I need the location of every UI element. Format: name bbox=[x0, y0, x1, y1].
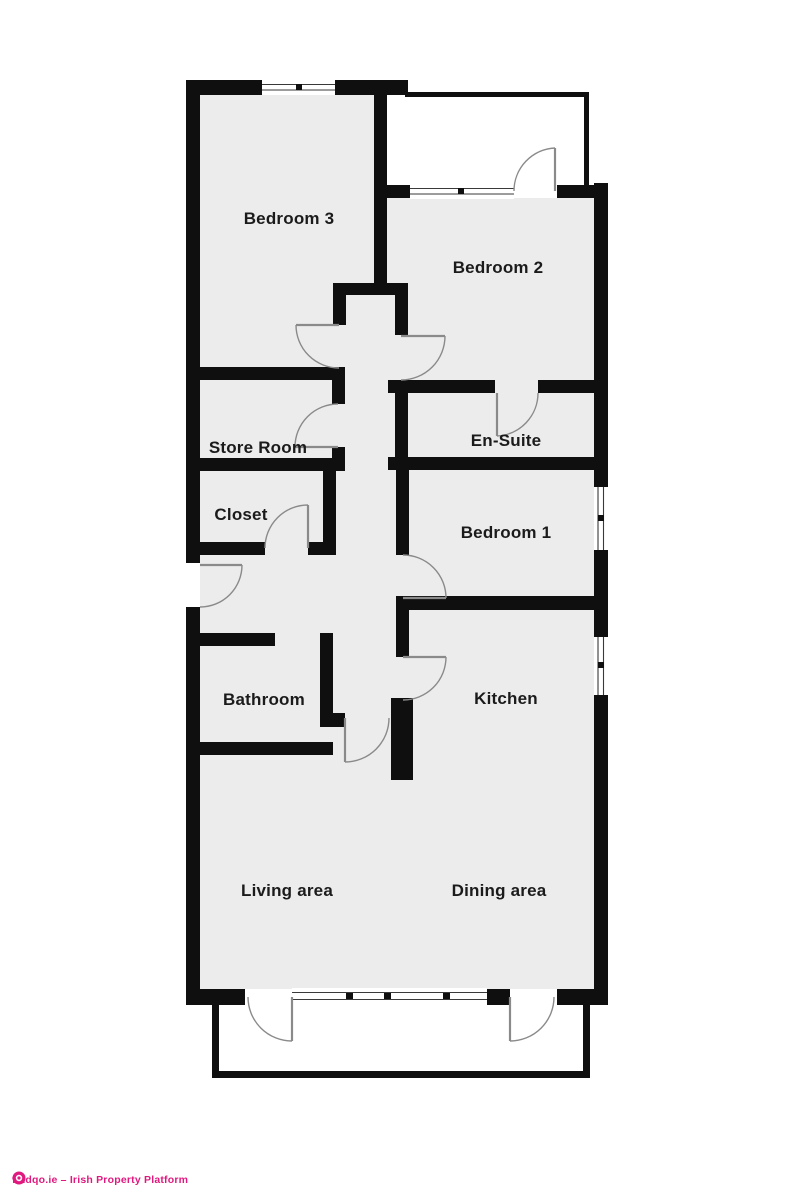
room-label-bathroom: Bathroom bbox=[223, 690, 305, 709]
wall-ensuite-bottom bbox=[388, 457, 608, 470]
room-label-dining-area: Dining area bbox=[452, 881, 547, 900]
wall-storeroom-right-upper bbox=[332, 367, 345, 404]
watermark: findqo.ie – Irish Property Platform bbox=[12, 1171, 188, 1189]
wall-bathroom-top bbox=[186, 633, 275, 646]
wall-bathroom-nub bbox=[320, 713, 345, 727]
room-label-en-suite: En-Suite bbox=[471, 431, 542, 450]
room-label-kitchen: Kitchen bbox=[474, 689, 538, 708]
room-label-bedroom2: Bedroom 2 bbox=[453, 258, 544, 277]
door-balcony-opening bbox=[514, 185, 557, 198]
wall-kitchen-pillar bbox=[391, 698, 413, 780]
wall-closet-right bbox=[323, 458, 336, 548]
wall-store-closet-divider bbox=[186, 458, 345, 471]
wall-balcony-right bbox=[584, 92, 589, 185]
wall-bedroom2-top-left bbox=[387, 185, 410, 198]
room-label-bedroom1: Bedroom 1 bbox=[461, 523, 552, 542]
room-label-store-room: Store Room bbox=[209, 438, 307, 457]
wall-bottom-mid bbox=[487, 989, 510, 1005]
wall-hall-right-upper bbox=[395, 283, 408, 335]
wall-ensuite-left bbox=[395, 380, 408, 470]
wall-outer-right-mid bbox=[594, 550, 608, 637]
door-balcony-left-opening bbox=[245, 989, 292, 1005]
wall-bottom-right bbox=[557, 989, 608, 1005]
floor-plan: Bedroom 3 Bedroom 2 Store Room En-Suite … bbox=[0, 0, 800, 1200]
wall-outer-right-lower bbox=[594, 695, 608, 1005]
door-balcony-right-opening bbox=[510, 989, 557, 1005]
wall-storeroom-top bbox=[186, 367, 345, 380]
floor-plan-page: Bedroom 3 Bedroom 2 Store Room En-Suite … bbox=[0, 0, 800, 1200]
wall-bedroom1-left bbox=[396, 457, 409, 555]
room-label-living-area: Living area bbox=[241, 881, 333, 900]
room-label-bedroom3: Bedroom 3 bbox=[244, 209, 335, 228]
wall-bedroom2-top-right bbox=[557, 185, 608, 198]
balcony-bottom bbox=[212, 1002, 590, 1078]
wall-outer-left-lower bbox=[186, 607, 200, 1005]
wall-hall-right-lower bbox=[396, 610, 409, 657]
wall-ensuite-top-right bbox=[538, 380, 608, 393]
wall-outer-left-upper bbox=[186, 80, 200, 563]
wall-balcony-top bbox=[405, 92, 588, 97]
wall-hall-left-stub bbox=[333, 283, 346, 325]
wall-outer-right-upper bbox=[594, 183, 608, 487]
wall-closet-bottom-right bbox=[308, 542, 336, 555]
wall-divider-bedroom3 bbox=[374, 80, 387, 287]
watermark-text: findqo.ie – Irish Property Platform bbox=[12, 1174, 188, 1186]
wall-bathroom-right bbox=[320, 633, 333, 727]
wall-bathroom-bottom bbox=[186, 742, 333, 755]
wall-balcony-bottom-left bbox=[212, 1002, 219, 1078]
wall-balcony-bottom-right bbox=[583, 1002, 590, 1078]
door-entrance-opening bbox=[186, 563, 200, 607]
findqo-logo-icon bbox=[12, 1171, 26, 1185]
wall-balcony-bottom-bottom bbox=[212, 1071, 590, 1078]
wall-closet-bottom-left bbox=[186, 542, 265, 555]
room-label-closet: Closet bbox=[214, 505, 267, 524]
